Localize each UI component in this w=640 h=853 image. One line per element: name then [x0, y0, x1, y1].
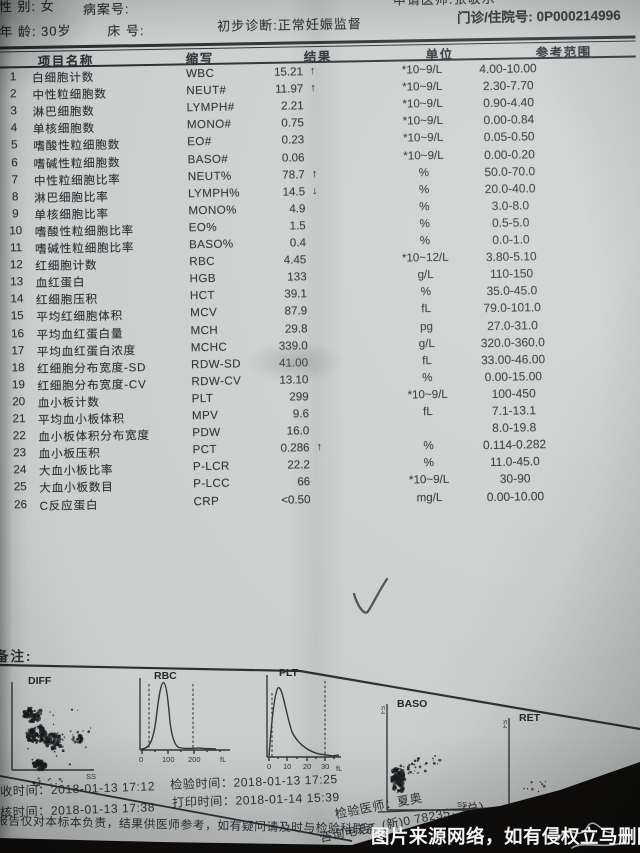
item-result: 15.21 — [229, 65, 303, 79]
rbc-histogram: 0 100 200 fL — [136, 672, 238, 768]
flag-arrow: ↓ — [312, 185, 318, 197]
item-name: C反应蛋白 — [39, 496, 98, 513]
svg-text:FS: FS — [503, 719, 509, 728]
item-name: 淋巴细胞比率 — [34, 188, 109, 205]
svg-text:fL: fL — [220, 755, 226, 764]
row-index: 4 — [3, 121, 25, 134]
item-abbr: PLT — [192, 392, 214, 405]
item-name: 嗜碱性粒细胞比率 — [35, 239, 134, 257]
item-result: 14.5 — [231, 185, 305, 199]
item-result: 1.5 — [232, 219, 306, 233]
item-result: 78.7 — [231, 168, 305, 182]
item-result: 29.8 — [233, 322, 307, 336]
row-index: 21 — [8, 412, 30, 425]
item-abbr: WBC — [186, 67, 214, 80]
item-name: 红细胞分布宽度-CV — [37, 376, 146, 394]
item-ref-range: 3.0-8.0 — [446, 197, 574, 213]
item-ref-range: 320.0-360.0 — [449, 334, 577, 350]
item-abbr: CRP — [193, 494, 219, 507]
item-name: 大血小板比率 — [39, 462, 114, 479]
handwritten-checkmark — [350, 578, 394, 622]
row-index: 3 — [3, 104, 25, 117]
ret-panel-title: RET — [519, 712, 540, 724]
item-name: 单核细胞数 — [33, 120, 95, 137]
case-number-label: 病案号: — [83, 0, 130, 18]
row-index: 11 — [5, 241, 27, 254]
item-name: 血小板体积分布宽度 — [38, 427, 150, 445]
lab-report-paper: 性 别: 女 病案号: 申请医师:张敬乐 年 龄: 30岁 床 号: 初步诊断:… — [0, 0, 640, 853]
preliminary-diagnosis: 初步诊断:正常妊娠监督 — [217, 13, 362, 35]
plt-panel-title: PLT — [279, 667, 298, 679]
row-index: 24 — [9, 463, 31, 476]
item-abbr: MONO% — [188, 203, 237, 217]
row-index: 12 — [5, 258, 27, 271]
item-name: 白细胞计数 — [32, 69, 94, 86]
item-ref-range: 11.0-45.0 — [451, 454, 579, 470]
item-abbr: EO% — [189, 221, 217, 234]
item-result: 11.97 — [229, 82, 303, 96]
item-ref-range: 0.114-0.282 — [450, 437, 578, 453]
watermark-text: 图片来源网络，如有侵权立马删除 — [371, 823, 640, 849]
svg-text:200: 200 — [188, 755, 201, 764]
item-name: 大血小板数目 — [39, 479, 114, 496]
row-index: 17 — [7, 344, 29, 357]
item-abbr: HCT — [190, 289, 215, 302]
svg-text:0: 0 — [139, 755, 143, 764]
row-index: 15 — [6, 309, 28, 322]
bed-number-label: 床 号: — [107, 20, 145, 40]
svg-text:FS: FS — [381, 705, 387, 714]
row-index: 2 — [2, 87, 24, 100]
item-ref-range: 100-450 — [450, 385, 578, 401]
item-abbr: P-LCC — [193, 477, 230, 491]
row-index: 7 — [4, 173, 26, 186]
ret-scatter: FS SS — [503, 710, 635, 816]
item-abbr: LYMPH# — [187, 101, 235, 115]
item-abbr: MPV — [192, 409, 219, 422]
plt-histogram: 0 10 20 30 fL — [263, 667, 351, 781]
item-ref-range: 0.00-10.00 — [451, 488, 579, 504]
svg-text:0: 0 — [267, 762, 271, 771]
item-name: 中性粒细胞数 — [32, 86, 107, 103]
item-abbr: RBC — [189, 255, 215, 268]
item-name: 红细胞分布宽度-SD — [37, 359, 146, 377]
item-result: 22.2 — [236, 458, 310, 472]
flag-arrow: ↑ — [310, 82, 316, 94]
row-index: 18 — [7, 361, 29, 374]
item-ref-range: 0.5-5.0 — [447, 214, 575, 230]
row-index: 1 — [2, 70, 24, 83]
item-result: 41.00 — [234, 356, 308, 370]
row-index: 22 — [8, 429, 30, 442]
visit-number: 门诊/住院号: 0P000214996 — [457, 4, 621, 27]
item-ref-range: 3.80-5.10 — [447, 249, 575, 265]
item-result: 0.4 — [232, 236, 306, 250]
item-abbr: PCT — [192, 443, 217, 456]
item-result: 0.06 — [230, 151, 304, 165]
item-name: 淋巴细胞数 — [33, 103, 95, 120]
item-result: 4.45 — [232, 253, 306, 267]
item-abbr: BASO% — [189, 238, 234, 252]
item-name: 嗜酸性粒细胞比率 — [35, 222, 134, 240]
item-abbr: PDW — [192, 426, 220, 439]
item-name: 平均血小板体积 — [38, 410, 125, 428]
row-index: 6 — [3, 156, 25, 169]
row-index: 19 — [7, 378, 29, 391]
remark-label: 备注: — [0, 645, 33, 665]
item-result: 133 — [232, 270, 306, 284]
row-index: 9 — [4, 207, 26, 220]
row-index: 16 — [6, 327, 28, 340]
row-index: 14 — [6, 292, 28, 305]
flag-arrow: ↑ — [310, 65, 316, 77]
flag-arrow: ↑ — [316, 441, 322, 453]
item-result: 9.6 — [235, 407, 309, 421]
patient-age: 年 龄: 30岁 — [0, 20, 72, 40]
item-abbr: EO# — [187, 135, 212, 148]
item-name: 平均血红蛋白浓度 — [37, 342, 136, 360]
item-ref-range: 27.0-31.0 — [448, 317, 576, 333]
item-name: 平均红细胞体积 — [36, 308, 123, 326]
row-index: 23 — [9, 446, 31, 459]
row-index: 25 — [9, 480, 31, 493]
item-name: 血小板压积 — [39, 445, 101, 462]
item-abbr: NEUT# — [186, 84, 226, 98]
item-ref-range: 0.0-1.0 — [447, 232, 575, 248]
item-ref-range: 110-150 — [447, 266, 575, 282]
svg-text:100: 100 — [162, 755, 175, 764]
item-result: 13.10 — [234, 373, 308, 387]
item-name: 单核细胞比率 — [34, 205, 109, 222]
item-result: 16.0 — [235, 424, 309, 438]
item-ref-range: 30-90 — [451, 471, 579, 487]
item-result: 39.1 — [233, 288, 307, 302]
item-result: <0.50 — [236, 493, 310, 507]
item-ref-range: 0.00-0.20 — [445, 146, 573, 162]
item-result: 0.286 — [235, 441, 309, 455]
row-index: 26 — [9, 498, 31, 511]
svg-text:SS: SS — [613, 798, 623, 807]
diff-panel-title: DIFF — [28, 675, 51, 687]
item-ref-range: 8.0-19.8 — [450, 420, 578, 436]
photo-background: 性 别: 女 病案号: 申请医师:张敬乐 年 龄: 30岁 床 号: 初步诊断:… — [0, 0, 640, 853]
row-index: 5 — [3, 139, 25, 152]
rbc-panel-title: RBC — [154, 670, 177, 682]
svg-text:10: 10 — [283, 762, 291, 771]
item-name: 平均血红蛋白量 — [36, 325, 123, 343]
row-index: 13 — [6, 275, 28, 288]
item-abbr: MCV — [190, 306, 217, 319]
item-result: 0.75 — [230, 117, 304, 131]
item-name: 中性粒细胞比率 — [34, 171, 121, 189]
item-abbr: HGB — [189, 272, 216, 285]
item-ref-range: 79.0-101.0 — [448, 300, 576, 316]
plt-histogram-panel: PLT 0 10 20 30 fL — [263, 667, 351, 781]
item-abbr: MCH — [190, 323, 218, 336]
flag-arrow: ↑ — [312, 168, 318, 180]
item-ref-range: 0.00-0.84 — [445, 112, 573, 128]
row-index: 10 — [5, 224, 27, 237]
item-ref-range: 0.90-4.40 — [444, 95, 572, 111]
item-name: 嗜酸性粒细胞数 — [33, 137, 120, 155]
ret-scattergram-panel: RET FS SS — [503, 710, 635, 816]
item-abbr: BASO# — [187, 152, 228, 166]
item-ref-range: 50.0-70.0 — [446, 163, 574, 179]
item-ref-range: 2.30-7.70 — [444, 78, 572, 94]
item-result: 66 — [236, 476, 310, 490]
item-name: 血小板计数 — [38, 394, 100, 411]
item-result: 87.9 — [233, 305, 307, 319]
item-abbr: NEUT% — [188, 169, 232, 183]
item-ref-range: 35.0-45.0 — [448, 283, 576, 299]
item-name: 红细胞压积 — [36, 291, 98, 308]
item-result: 4.9 — [231, 202, 305, 216]
item-ref-range: 20.0-40.0 — [446, 180, 574, 196]
baso-panel-title: BASO — [397, 698, 427, 710]
item-result: 339.0 — [234, 339, 308, 353]
item-result: 2.21 — [230, 99, 304, 113]
item-abbr: P-LCR — [193, 460, 230, 474]
item-result: 299 — [235, 390, 309, 404]
row-index: 20 — [8, 395, 30, 408]
item-name: 红细胞计数 — [35, 257, 97, 274]
item-ref-range: 0.05-0.50 — [445, 129, 573, 145]
item-name: 血红蛋白 — [36, 274, 86, 291]
item-ref-range: 33.00-46.00 — [449, 351, 577, 367]
item-name: 嗜碱性粒细胞数 — [33, 154, 120, 172]
item-result: 0.23 — [230, 134, 304, 148]
item-ref-range: 0.00-15.00 — [449, 368, 577, 384]
item-abbr: MONO# — [187, 118, 232, 132]
item-ref-range: 7.1-13.1 — [450, 403, 578, 419]
item-ref-range: 4.00-10.00 — [444, 61, 572, 77]
row-index: 8 — [4, 190, 26, 203]
rbc-histogram-panel: RBC 0 100 200 fL — [136, 672, 238, 768]
patient-sex: 性 别: 女 — [0, 0, 55, 16]
item-abbr: MCHC — [191, 340, 228, 354]
